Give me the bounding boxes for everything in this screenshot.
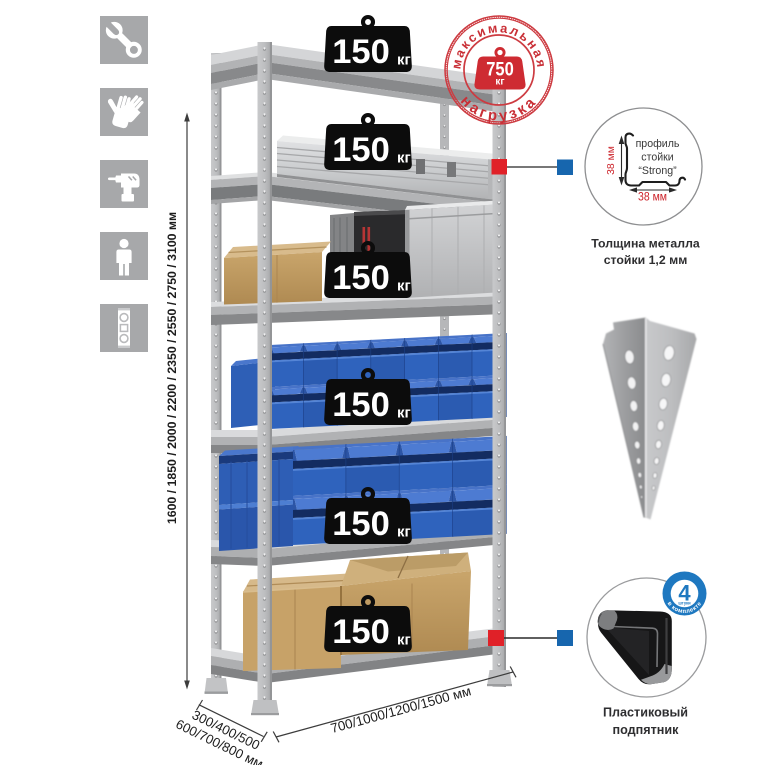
svg-text:150: 150 xyxy=(332,131,390,169)
svg-text:кг: кг xyxy=(397,52,411,69)
svg-text:“Strong”: “Strong” xyxy=(638,165,677,177)
svg-text:кг: кг xyxy=(495,77,504,88)
svg-text:кг: кг xyxy=(397,278,411,295)
svg-text:150: 150 xyxy=(332,613,390,651)
svg-text:150: 150 xyxy=(332,33,390,71)
svg-text:150: 150 xyxy=(332,386,390,424)
svg-text:стойки 1,2 мм: стойки 1,2 мм xyxy=(604,253,688,267)
svg-text:150: 150 xyxy=(332,259,390,297)
svg-text:38 мм: 38 мм xyxy=(638,190,667,204)
svg-text:кг: кг xyxy=(397,632,411,649)
svg-text:1600 / 1850 / 2000 / 2200 / 23: 1600 / 1850 / 2000 / 2200 / 2350 / 2550 … xyxy=(165,212,179,524)
svg-text:стойки: стойки xyxy=(641,152,673,164)
svg-text:кг: кг xyxy=(397,524,411,541)
svg-text:кг: кг xyxy=(397,150,411,167)
svg-text:Пластиковый: Пластиковый xyxy=(603,706,688,720)
svg-text:штуки: штуки xyxy=(678,601,691,606)
svg-text:кг: кг xyxy=(397,405,411,422)
svg-text:38 мм: 38 мм xyxy=(606,146,617,175)
svg-text:подпятник: подпятник xyxy=(613,723,680,737)
svg-text:Толщина металла: Толщина металла xyxy=(591,237,700,251)
svg-text:профиль: профиль xyxy=(636,138,680,150)
svg-text:150: 150 xyxy=(332,505,390,543)
